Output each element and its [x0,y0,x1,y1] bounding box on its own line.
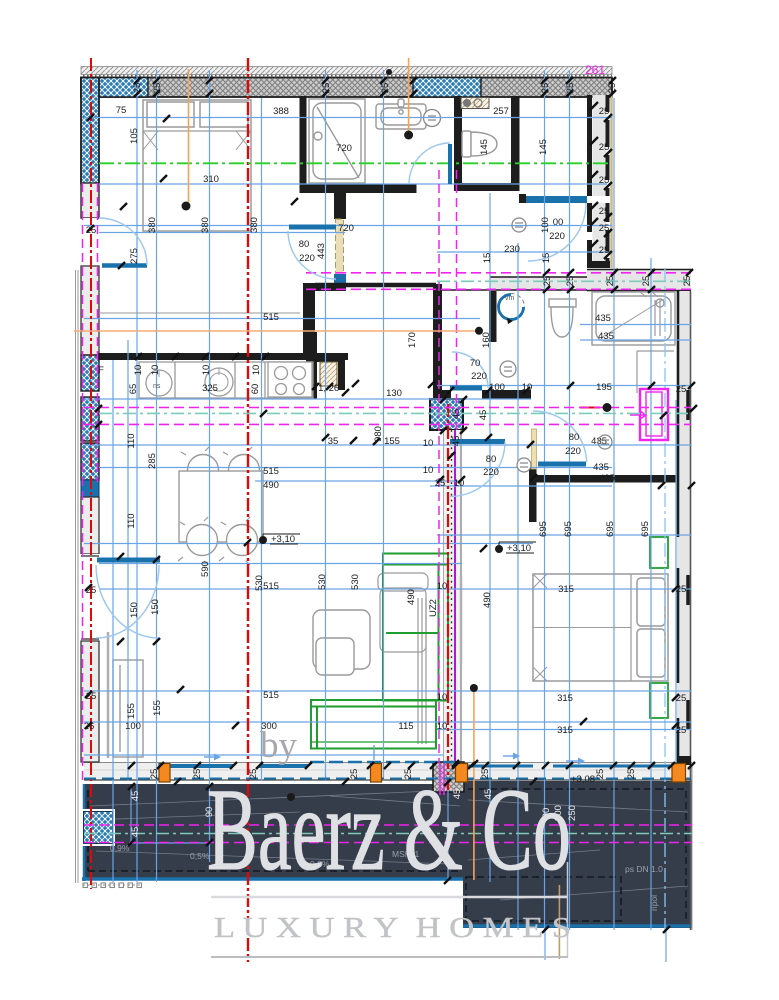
svg-text:25: 25 [676,725,687,736]
svg-text:25: 25 [682,276,693,287]
svg-text:15: 15 [541,253,552,264]
svg-text:515: 515 [263,581,279,592]
svg-text:L U X U R Y H O M E S: L U X U R Y H O M E S [214,912,571,944]
svg-text:220: 220 [299,253,315,264]
svg-text:25: 25 [435,478,446,489]
svg-text:71, 26: 71, 26 [313,383,339,394]
svg-text:10: 10 [454,478,465,489]
svg-text:443: 443 [316,243,327,259]
svg-text:145: 145 [538,139,549,155]
svg-text:257: 257 [493,106,509,117]
svg-text:vm: vm [505,295,515,302]
svg-text:515: 515 [263,466,279,477]
svg-text:45: 45 [130,827,141,838]
svg-text:220: 220 [565,446,581,457]
svg-text:by: by [260,725,298,766]
svg-text:150: 150 [150,599,161,615]
svg-text:155: 155 [384,436,400,447]
svg-text:100: 100 [125,721,141,732]
svg-text:ps DN 1.0: ps DN 1.0 [625,864,663,874]
svg-text:10: 10 [150,365,161,376]
svg-text:45: 45 [451,409,462,420]
svg-text:25: 25 [132,83,143,94]
svg-text:10: 10 [423,438,434,449]
svg-text:530: 530 [317,574,328,590]
svg-text:10: 10 [437,721,448,732]
svg-text:25: 25 [86,225,97,236]
svg-text:25: 25 [149,769,160,780]
svg-text:25: 25 [676,584,687,595]
svg-text:80: 80 [299,239,310,250]
svg-text:26: 26 [84,721,95,732]
svg-text:25: 25 [599,206,610,217]
svg-text:25: 25 [599,175,610,186]
svg-text:530: 530 [350,574,361,590]
svg-text:25: 25 [565,83,576,94]
svg-text:Baerz & Co: Baerz & Co [207,764,571,895]
svg-text:00: 00 [553,217,564,228]
svg-text:25: 25 [595,769,606,780]
svg-text:388: 388 [273,106,289,117]
svg-text:195: 195 [596,382,612,393]
svg-text:105: 105 [129,128,140,144]
svg-text:170: 170 [407,332,418,348]
svg-text:+3,10: +3,10 [507,543,531,554]
svg-text:UZ2: UZ2 [428,599,439,617]
svg-text:110: 110 [126,513,137,528]
svg-text:70: 70 [470,358,481,369]
svg-text:220: 220 [549,231,565,242]
svg-text:ripol: ripol [649,895,659,911]
svg-text:35: 35 [328,436,339,447]
svg-text:+3,08: +3,08 [571,774,595,785]
svg-text:261: 261 [585,63,605,77]
svg-text:80: 80 [569,432,580,443]
svg-text:980: 980 [373,426,384,442]
svg-text:720: 720 [338,223,354,234]
svg-text:25: 25 [599,223,610,234]
svg-text:F: F [98,365,104,376]
svg-text:435: 435 [598,331,614,342]
svg-text:25: 25 [86,691,97,702]
svg-text:315: 315 [557,725,573,736]
svg-text:100: 100 [489,382,505,393]
svg-text:45: 45 [130,791,141,802]
svg-text:110: 110 [126,433,137,448]
svg-text:25: 25 [676,384,687,395]
svg-text:25: 25 [192,769,203,780]
svg-text:325: 325 [202,383,218,394]
svg-text:25: 25 [380,83,391,94]
svg-text:25: 25 [540,83,551,94]
svg-text:25: 25 [86,585,97,596]
svg-text:435: 435 [593,462,609,473]
svg-text:590: 590 [200,561,211,577]
svg-text:695: 695 [563,521,574,537]
svg-text:230: 230 [504,244,520,255]
svg-text:10: 10 [133,365,144,376]
svg-text:490: 490 [263,480,279,491]
svg-text:25: 25 [542,276,553,287]
svg-text:45: 45 [478,410,489,421]
svg-text:10: 10 [437,692,448,703]
svg-text:285: 285 [147,453,158,469]
svg-text:80: 80 [486,454,497,465]
svg-text:10: 10 [423,465,434,476]
svg-text:15: 15 [482,253,493,264]
svg-text:275: 275 [129,248,140,264]
svg-text:115: 115 [398,721,413,732]
svg-text:315: 315 [557,693,573,704]
svg-text:515: 515 [263,312,279,323]
svg-text:310: 310 [203,174,219,185]
svg-text:25: 25 [676,693,687,704]
svg-text:695: 695 [538,521,549,537]
svg-text:75: 75 [116,105,127,116]
svg-text:155: 155 [126,703,137,719]
svg-text:145: 145 [479,139,490,155]
svg-text:25: 25 [599,142,610,153]
svg-text:10: 10 [201,365,212,376]
svg-text:490: 490 [482,592,493,608]
svg-text:25: 25 [565,276,576,287]
svg-text:45: 45 [451,436,462,447]
svg-text:155: 155 [152,700,163,716]
svg-text:100: 100 [540,217,551,233]
svg-text:65: 65 [128,384,139,395]
svg-text:25: 25 [626,769,637,780]
svg-text:25: 25 [641,276,652,287]
svg-text:530: 530 [254,575,265,591]
svg-text:315: 315 [558,584,574,595]
svg-text:10: 10 [251,365,262,376]
svg-text:220: 220 [471,371,487,382]
svg-text:10: 10 [522,382,533,393]
svg-text:515: 515 [263,690,279,701]
svg-text:380: 380 [147,217,158,233]
svg-text:25: 25 [607,83,618,94]
svg-text:60: 60 [250,384,261,395]
svg-text:25: 25 [321,83,332,94]
svg-text:150: 150 [129,602,140,618]
svg-text:ns: ns [153,383,161,390]
svg-text:25: 25 [599,106,610,117]
svg-text:25: 25 [605,276,616,287]
svg-text:720: 720 [336,143,352,154]
svg-text:490: 490 [406,589,417,605]
svg-text:695: 695 [640,521,651,537]
svg-text:25: 25 [152,83,163,94]
svg-text:+3,10: +3,10 [271,534,295,545]
svg-text:695: 695 [605,521,616,537]
svg-text:10: 10 [437,581,448,592]
svg-text:160: 160 [481,332,492,348]
svg-text:130: 130 [386,388,402,399]
svg-text:220: 220 [483,467,499,478]
svg-text:435: 435 [599,473,615,484]
svg-text:380: 380 [200,217,211,233]
svg-text:435: 435 [595,313,611,324]
svg-text:25: 25 [599,245,610,256]
svg-text:380: 380 [249,217,260,233]
svg-text:0,9%: 0,9% [110,843,130,853]
